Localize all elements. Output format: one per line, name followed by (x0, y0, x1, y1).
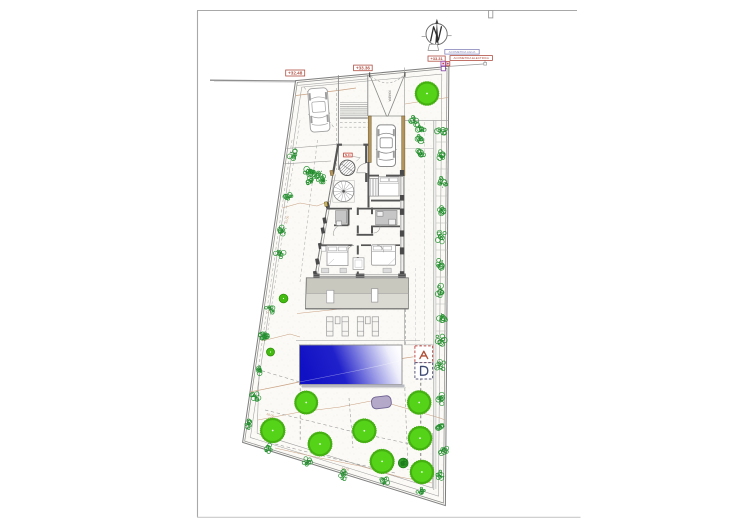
svg-text:ACOMETIDA ELECTRICA: ACOMETIDA ELECTRICA (454, 56, 489, 60)
svg-text:N-11: N-11 (345, 153, 351, 157)
svg-text:+33.36: +33.36 (356, 66, 370, 71)
svg-text:ACOMETIDA AGUA: ACOMETIDA AGUA (449, 50, 476, 54)
svg-text:+33.31: +33.31 (430, 56, 443, 61)
svg-text:RAMPA: RAMPA (388, 90, 392, 102)
svg-text:+32.48: +32.48 (288, 71, 303, 76)
